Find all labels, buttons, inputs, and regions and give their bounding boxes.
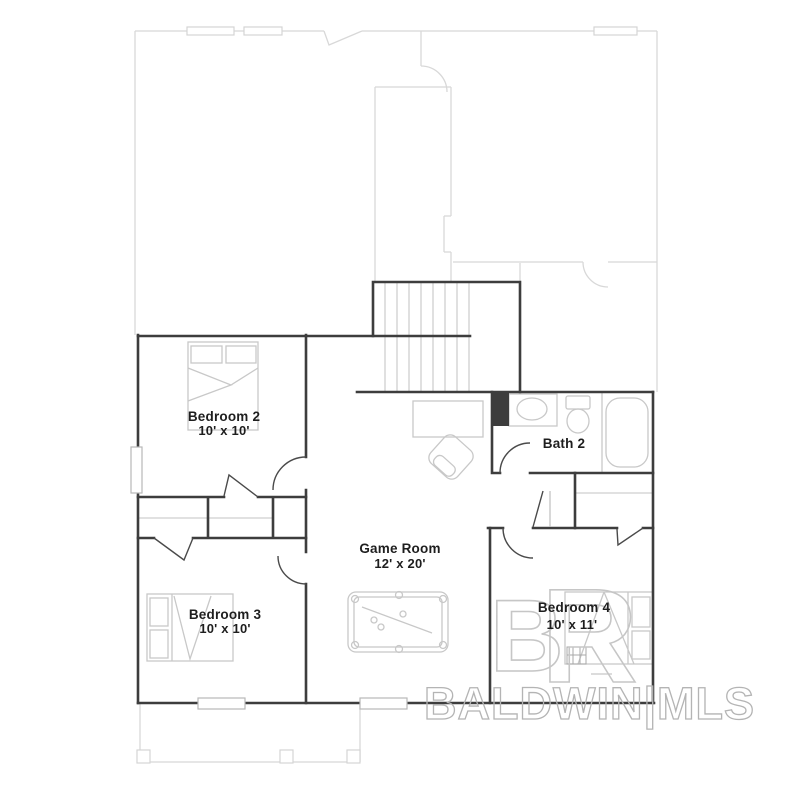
room-label-bedroom2: Bedroom 2 [188, 409, 260, 424]
room-label-gameroom: Game Room [359, 541, 440, 556]
desk-icon [413, 401, 483, 482]
window-icon [198, 698, 245, 709]
room-label-bedroom3: Bedroom 3 [189, 607, 262, 622]
toilet-icon [566, 396, 590, 433]
window-icon [131, 447, 142, 493]
watermark-mls: BALDWIN|MLS [424, 678, 755, 730]
floor-plan-image: B R BALDWIN|MLS Bedroom 2 10' x 10' Bedr… [0, 0, 800, 800]
door-leaf-icon [533, 491, 543, 527]
room-label-bath2: Bath 2 [543, 436, 585, 451]
room-dims-gameroom: 12' x 20' [374, 556, 425, 571]
labels-layer: Bedroom 2 10' x 10' Bedroom 3 10' x 10' … [188, 409, 611, 636]
window-icon [594, 27, 637, 35]
windows-layer [131, 447, 407, 709]
door-swing-icon [273, 457, 306, 490]
closet-door-icon [154, 538, 193, 560]
room-dims-bedroom2: 10' x 10' [198, 423, 249, 438]
watermark-layer: B R BALDWIN|MLS [424, 562, 755, 730]
room-label-bedroom4: Bedroom 4 [538, 600, 611, 615]
entry-door-icon [324, 31, 362, 45]
window-icon [244, 27, 282, 35]
floor-plan-drawing: B R BALDWIN|MLS Bedroom 2 10' x 10' Bedr… [0, 0, 800, 800]
sink-icon [509, 394, 557, 426]
porch-outline [140, 703, 360, 762]
bathtub-icon [602, 393, 648, 472]
porch-post-icon [280, 750, 293, 763]
door-swing-icon [583, 262, 608, 287]
closet-door-icon [224, 475, 258, 497]
door-swing-icon [278, 556, 306, 584]
room-dims-bedroom4: 10' x 11' [547, 617, 598, 632]
door-swing-icon [500, 443, 530, 473]
window-icon [187, 27, 234, 35]
porch-post-icon [137, 750, 150, 763]
wall-fill [492, 393, 509, 426]
pool-table-icon [348, 592, 448, 653]
window-icon [360, 698, 407, 709]
door-swing-icon [421, 66, 447, 92]
porch-post-icon [347, 750, 360, 763]
closet-door-icon [617, 528, 643, 545]
door-swing-icon [503, 528, 533, 558]
room-dims-bedroom3: 10' x 10' [199, 621, 250, 636]
